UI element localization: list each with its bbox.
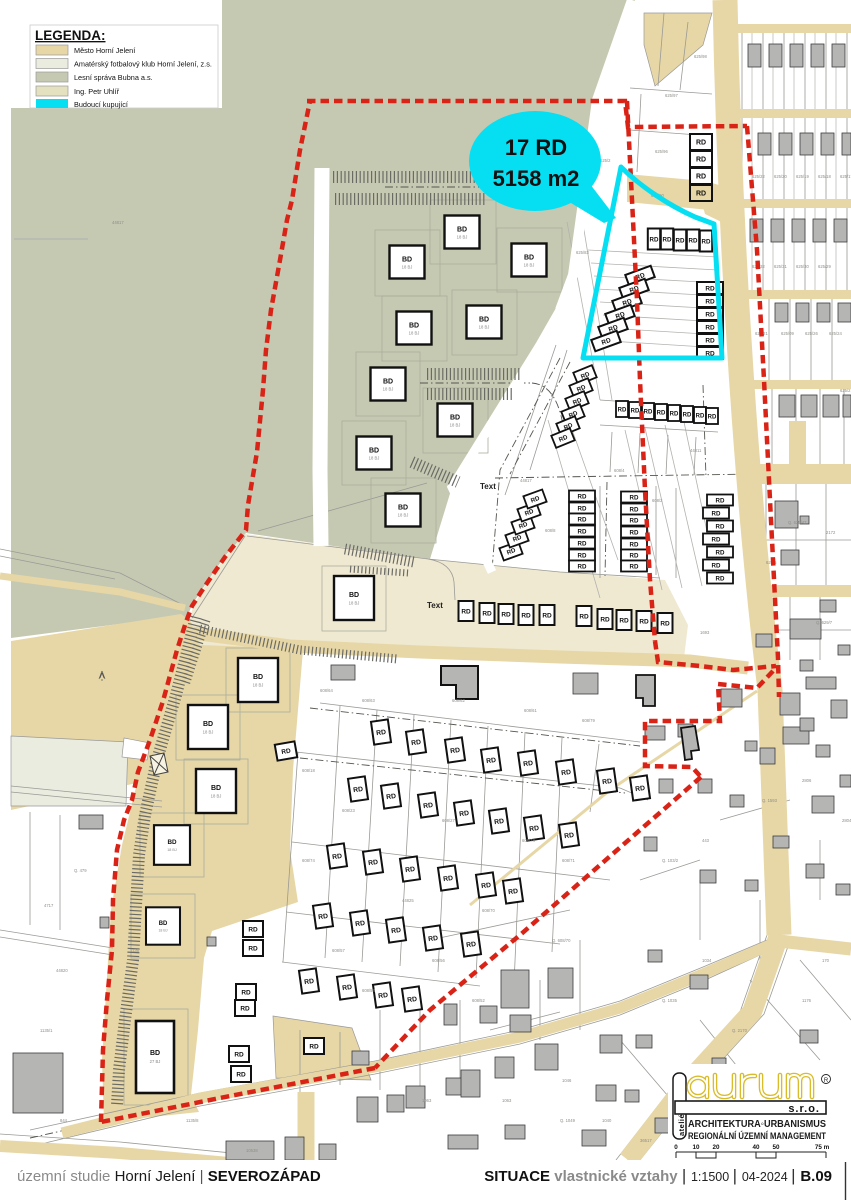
svg-text:2172: 2172 [826, 530, 836, 535]
svg-text:608/57: 608/57 [332, 948, 345, 953]
svg-text:10538: 10538 [246, 1148, 258, 1153]
svg-text:608/23: 608/23 [342, 808, 355, 813]
svg-text:608/54: 608/54 [362, 988, 375, 993]
svg-text:608/70: 608/70 [482, 908, 495, 913]
svg-text:1176: 1176 [802, 998, 812, 1003]
svg-text:44817: 44817 [112, 220, 124, 225]
svg-text:1135/8: 1135/8 [186, 1118, 199, 1123]
svg-text:Text: Text [427, 601, 443, 610]
svg-text:Q. 1593: Q. 1593 [762, 798, 778, 803]
svg-text:Q. 103/2: Q. 103/2 [662, 858, 679, 863]
svg-text:1135: 1135 [130, 948, 140, 953]
svg-text:608/56: 608/56 [432, 958, 445, 963]
svg-text:Q. 625/47: Q. 625/47 [788, 520, 807, 525]
svg-text:1135/1: 1135/1 [40, 1028, 53, 1033]
svg-text:územní studie Horní Jelení | S: územní studie Horní Jelení | SEVEROZÁPAD [17, 1168, 321, 1185]
svg-text:608/74: 608/74 [522, 838, 535, 843]
svg-text:844: 844 [60, 1118, 68, 1123]
svg-text:Amatérský fotbalový klub Horní: Amatérský fotbalový klub Horní Jelení, z… [74, 60, 212, 69]
svg-text:608/61: 608/61 [524, 708, 537, 713]
svg-text:LEGENDA:: LEGENDA: [35, 28, 106, 43]
svg-text:608/18: 608/18 [302, 768, 315, 773]
svg-text:2804: 2804 [842, 818, 851, 823]
svg-text:625/2: 625/2 [600, 158, 611, 163]
svg-text:625/09: 625/09 [781, 331, 794, 336]
svg-text:5158 m2: 5158 m2 [493, 166, 580, 191]
svg-text:Q. 1035: Q. 1035 [662, 998, 678, 1003]
svg-text:608/62: 608/62 [452, 698, 465, 703]
svg-text:10: 10 [692, 1144, 700, 1151]
svg-text:Q. 479: Q. 479 [74, 868, 87, 873]
svg-text:BD: BD [150, 1050, 160, 1057]
svg-text:0: 0 [674, 1144, 678, 1151]
svg-text:625/83: 625/83 [576, 250, 589, 255]
svg-text:Město Horní Jelení: Město Horní Jelení [74, 46, 135, 55]
svg-text:44820: 44820 [56, 968, 68, 973]
svg-text:625/2: 625/2 [840, 388, 851, 393]
svg-text:ARCHITEKTURA◦URBANISMUS: ARCHITEKTURA◦URBANISMUS [688, 1119, 826, 1130]
svg-text:625/26: 625/26 [805, 331, 818, 336]
svg-text:608/64: 608/64 [320, 688, 333, 693]
svg-text:625/17: 625/17 [840, 174, 851, 179]
svg-text:Q. 629/7: Q. 629/7 [816, 620, 833, 625]
svg-text:Q. 1049: Q. 1049 [560, 1118, 576, 1123]
svg-text:625/24: 625/24 [829, 331, 842, 336]
svg-text:27 BJ: 27 BJ [150, 1059, 161, 1064]
svg-text:608/63: 608/63 [362, 698, 375, 703]
svg-text:625/19: 625/19 [796, 174, 809, 179]
svg-text:Q. 2170: Q. 2170 [732, 1028, 748, 1033]
svg-text:1063: 1063 [502, 1098, 512, 1103]
svg-text:443: 443 [702, 838, 710, 843]
svg-text:608/2: 608/2 [652, 498, 663, 503]
svg-text:625/18: 625/18 [818, 174, 831, 179]
svg-text:1693: 1693 [700, 630, 710, 635]
svg-text:1046: 1046 [562, 1078, 572, 1083]
svg-text:608/79: 608/79 [582, 718, 595, 723]
svg-text:170: 170 [822, 958, 830, 963]
svg-text:50: 50 [772, 1144, 780, 1151]
svg-text:608/4: 608/4 [614, 468, 625, 473]
svg-text:17 RD: 17 RD [505, 135, 567, 160]
svg-text:Budoucí kupující: Budoucí kupující [74, 100, 128, 109]
svg-text:Lesní správa Bubna a.s.: Lesní správa Bubna a.s. [74, 73, 153, 82]
svg-text:44825: 44825 [402, 898, 414, 903]
svg-text:625/97: 625/97 [665, 93, 678, 98]
svg-text:608/27: 608/27 [442, 818, 455, 823]
svg-text:40: 40 [752, 1144, 760, 1151]
svg-text:2806: 2806 [802, 778, 812, 783]
svg-text:20: 20 [712, 1144, 720, 1151]
svg-text:625/98: 625/98 [694, 54, 707, 59]
svg-text:75 m: 75 m [815, 1144, 830, 1151]
svg-text:625/20: 625/20 [774, 174, 787, 179]
svg-text:REGIONÁLNÍ ÚZEMNÍ MANAGEMENT: REGIONÁLNÍ ÚZEMNÍ MANAGEMENT [688, 1130, 826, 1142]
svg-text:Ing. Petr Uhlíř: Ing. Petr Uhlíř [74, 87, 120, 96]
svg-text:608/74: 608/74 [302, 858, 315, 863]
svg-text:608/71: 608/71 [562, 858, 575, 863]
svg-text:44811: 44811 [690, 448, 702, 453]
svg-text:625/30: 625/30 [796, 264, 809, 269]
svg-text:44817: 44817 [520, 478, 532, 483]
svg-text:Text: Text [480, 482, 496, 491]
svg-text:625/22: 625/22 [752, 174, 765, 179]
svg-text:1040: 1040 [602, 1118, 612, 1123]
svg-text:625/96: 625/96 [655, 149, 668, 154]
svg-text:625/31: 625/31 [774, 264, 787, 269]
svg-text:4717: 4717 [44, 903, 54, 908]
svg-text:1063: 1063 [422, 1098, 432, 1103]
svg-text:R: R [824, 1078, 829, 1084]
svg-text:1034: 1034 [702, 958, 712, 963]
svg-text:36517: 36517 [640, 1138, 652, 1143]
svg-text:s.r.o.: s.r.o. [788, 1103, 820, 1115]
svg-text:625/29: 625/29 [818, 264, 831, 269]
svg-text:608/52: 608/52 [472, 998, 485, 1003]
svg-text:Q. 608/70: Q. 608/70 [552, 938, 571, 943]
svg-text:608/8: 608/8 [545, 528, 556, 533]
